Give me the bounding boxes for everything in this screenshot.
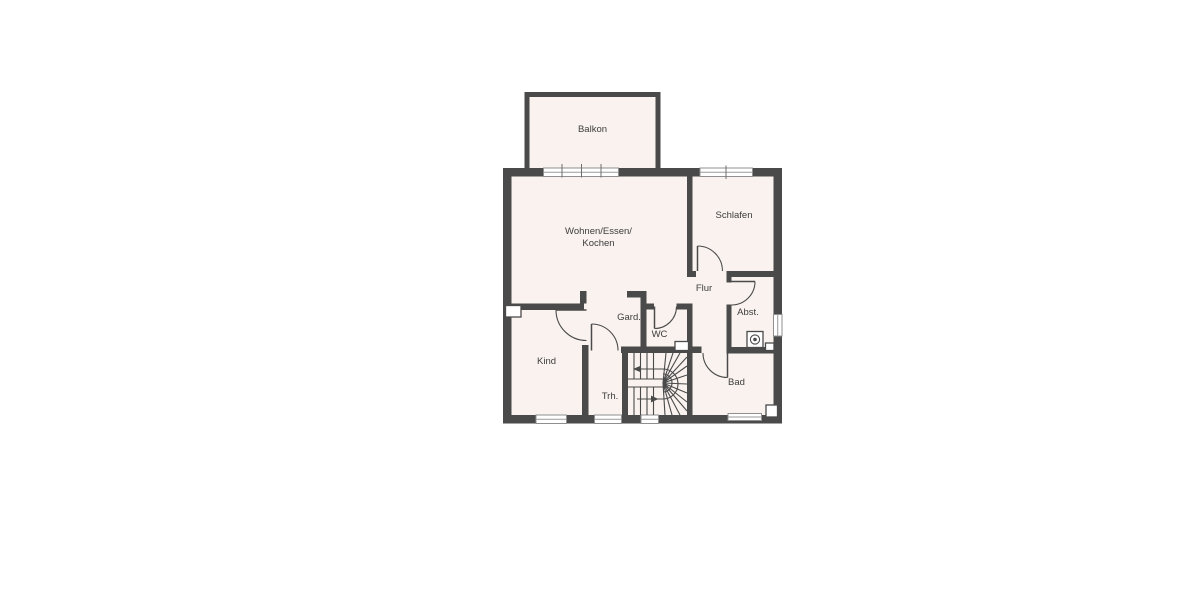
room-label-balkon: Balkon — [578, 124, 607, 136]
window-abst-right — [774, 315, 783, 337]
balcony-wall-right — [656, 92, 661, 168]
wall-stub-above-kind — [580, 291, 587, 304]
washing-machine-icon — [747, 332, 763, 348]
floor-plan-drawing — [0, 0, 1200, 600]
wall-wc-top-left — [647, 304, 655, 310]
room-label-wc: WC — [652, 329, 668, 341]
room-label-bad: Bad — [728, 377, 745, 389]
room-label-abst: Abst. — [737, 307, 759, 319]
wall-kind-trh — [582, 345, 589, 416]
niche-wc — [675, 342, 689, 351]
room-label-trh: Trh. — [602, 391, 619, 403]
room-label-wohnen-line1: Wohnen/Essen/ — [565, 226, 632, 238]
room-label-gard: Gard. — [617, 312, 641, 324]
wall-kind-top — [512, 304, 585, 311]
wall-wc-top-right — [677, 304, 693, 310]
room-label-kind: Kind — [537, 356, 556, 368]
wall-schlafen-bottom-a — [687, 271, 696, 277]
niche-kind — [506, 306, 522, 318]
window-kind — [536, 415, 567, 424]
wall-abst-left-stub — [727, 277, 732, 283]
niche-bad-corner — [766, 405, 778, 417]
exterior-wall-right — [774, 168, 783, 424]
niche-abst — [766, 343, 775, 351]
room-label-wohnen-line2: Kochen — [565, 238, 632, 250]
window-trh — [595, 415, 622, 424]
wall-wohnen-schlafen — [687, 177, 693, 278]
wall-gard-wc-left — [641, 291, 647, 352]
balcony-wall-left — [525, 92, 530, 168]
floor-plan-canvas: Balkon Wohnen/Essen/ Kochen Schlafen Flu… — [0, 0, 1200, 600]
wall-stair-right — [687, 353, 693, 415]
window-schlafen — [700, 166, 753, 180]
window-stair — [641, 415, 659, 424]
wall-schlafen-bottom-b — [727, 271, 774, 277]
wall-stair-top — [621, 347, 702, 354]
wall-stair-left — [622, 347, 628, 416]
window-bad — [728, 414, 762, 421]
room-label-wohnen: Wohnen/Essen/ Kochen — [565, 226, 632, 250]
room-label-flur: Flur — [696, 283, 712, 295]
room-label-schlafen: Schlafen — [716, 210, 753, 222]
balcony-wall-top — [525, 92, 661, 97]
exterior-wall-left — [503, 168, 512, 424]
wall-abst-left — [727, 305, 732, 352]
